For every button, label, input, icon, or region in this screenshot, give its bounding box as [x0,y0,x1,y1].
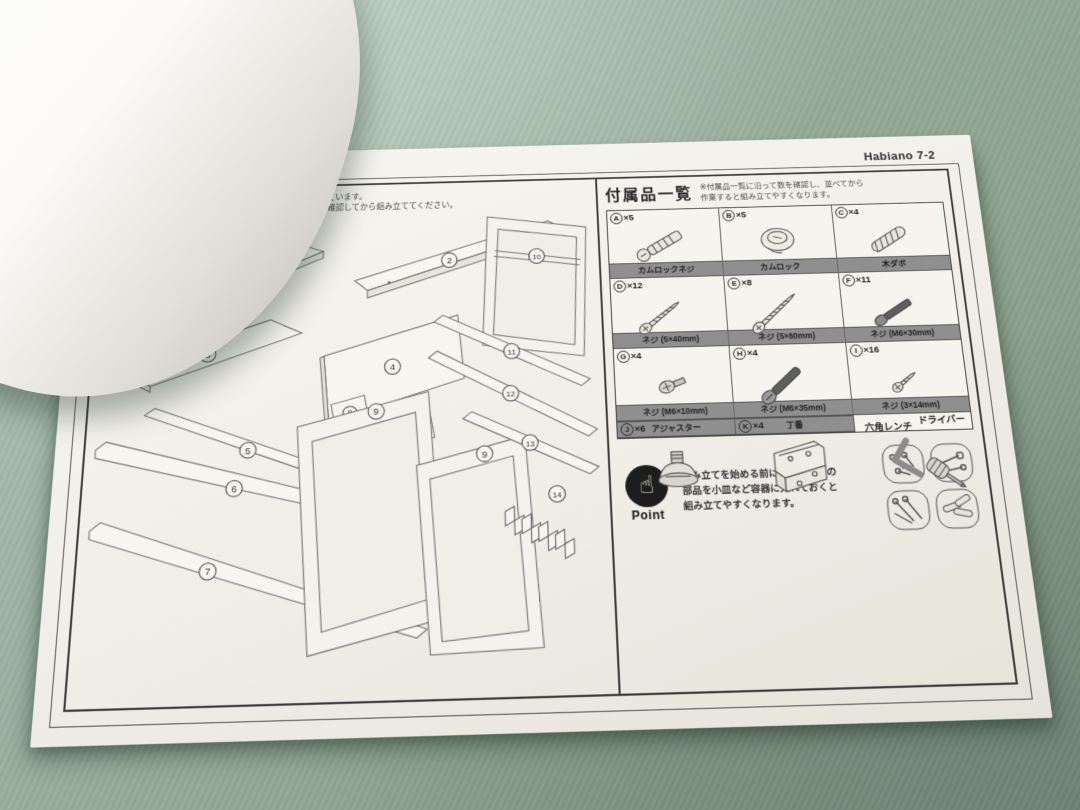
svg-text:2: 2 [447,256,452,266]
wood-screw-60-icon [727,284,842,337]
acc-cell-G: G×4 [614,346,733,405]
acc-col-J: J×6 アジャスター [617,418,735,438]
hinge-bracket-icon [738,426,859,503]
hex-wrench-screwdriver-icon [853,412,983,517]
screw-m6x10-icon [616,357,731,412]
acc-cell-C: C×4 [830,202,949,257]
svg-text:6: 6 [231,484,237,495]
part-10-frame: 10 [481,214,592,358]
wood-screw-40-icon [613,287,726,340]
bolt-m6x35-icon [733,354,850,409]
svg-text:13: 13 [525,439,534,448]
acc-cell-H: H×4 [729,342,851,401]
acc-cell-F: F×11 [837,270,958,327]
page-code: Habiano 7-2 [863,149,936,163]
acc-cell-A: A×5 [607,208,722,263]
acc-col-K: K×4 丁番 [734,415,854,435]
adjuster-icon [620,430,739,507]
acc-cell-B: B×5 [718,205,836,260]
svg-text:5: 5 [245,445,251,455]
accessories-panel: 付属品一覧 ※付属品一覧に沿って数を確認し、並べてから 作業すると組み立てやすく… [597,170,1016,693]
svg-text:7: 7 [205,566,211,577]
tools-cell: 六角レンチ [852,412,972,432]
accessories-note: ※付属品一覧に沿って数を確認し、並べてから 作業すると組み立てやすくなります。 [699,178,865,203]
screw-3x14-icon [849,351,967,406]
accessories-header: 付属品一覧 ※付属品一覧に沿って数を確認し、並べてから 作業すると組み立てやすく… [605,176,943,206]
wood-dowel-icon [834,213,948,264]
svg-text:14: 14 [552,490,562,500]
svg-text:4: 4 [390,362,395,372]
screwdriver-label: ドライバー [917,411,966,426]
svg-text:12: 12 [506,389,515,398]
accessories-grid: A×5 B×5 [606,201,974,438]
camlock-screw-icon [609,219,720,270]
point-label: Point [620,507,676,523]
part-12-bar: 12 [428,347,597,440]
svg-text:9: 9 [482,449,488,459]
bolt-m6x30-icon [842,281,958,334]
photo-of-assembly-manual: { "page_code": "Habiano 7-2", "colors": … [0,0,1080,810]
acc-cell-D: D×12 [610,276,727,333]
svg-text:11: 11 [507,347,515,356]
acc-cell-I: I×16 [845,339,968,398]
part-9-frame-b: 9 [416,435,544,655]
svg-text:9: 9 [374,407,379,417]
accessories-title: 付属品一覧 [605,182,694,205]
acc-cell-E: E×8 [723,273,843,330]
camlock-icon [722,216,835,267]
svg-text:10: 10 [532,252,541,261]
